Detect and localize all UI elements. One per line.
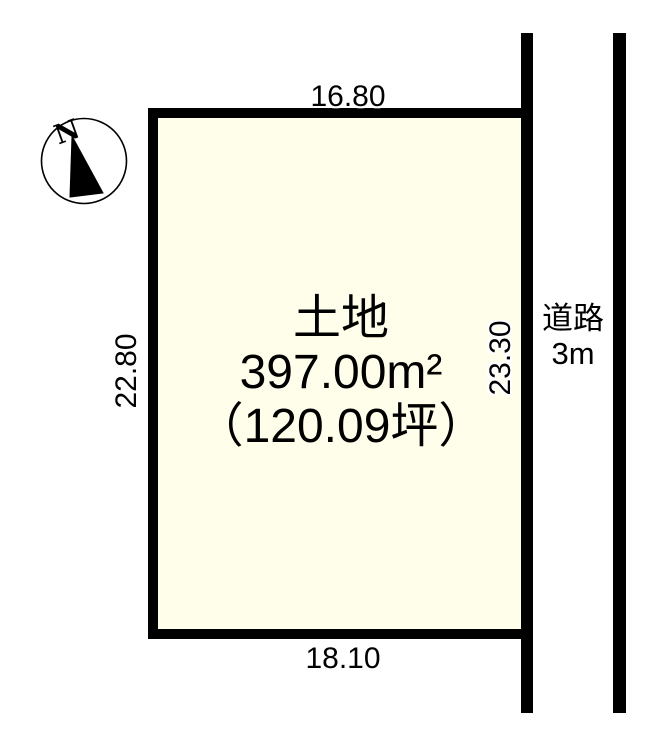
dimension-left: 22.80: [112, 333, 142, 408]
road-width: 3m: [542, 336, 604, 371]
dimension-bottom: 18.10: [305, 644, 380, 674]
parcel-label: 土地 397.00m² （120.09坪）: [196, 292, 487, 454]
land-plot-diagram: N 16.80 18.10 22.80 23.30 土地 397.00m² （1…: [0, 0, 654, 749]
road-edge-near-line: [521, 33, 533, 713]
road-name: 道路: [542, 301, 604, 336]
road-edge-far-line: [613, 33, 626, 713]
dimension-top: 16.80: [310, 82, 385, 112]
compass: N: [40, 117, 128, 205]
parcel-area-m2: 397.00m²: [196, 346, 487, 400]
dimension-right: 23.30: [486, 320, 516, 395]
parcel-title: 土地: [196, 292, 487, 346]
parcel-area-tsubo: （120.09坪）: [196, 400, 487, 454]
road-label: 道路 3m: [542, 301, 604, 371]
